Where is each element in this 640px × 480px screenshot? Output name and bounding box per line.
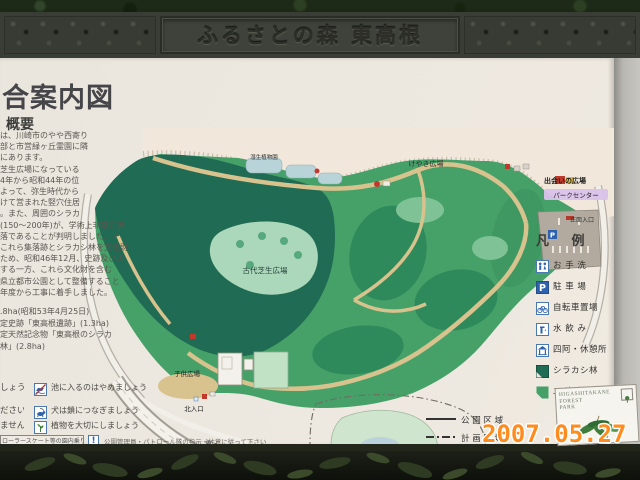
sign-board: P P xyxy=(0,58,614,446)
fence-leaf-relief xyxy=(0,444,640,480)
legend-label: シラカシ林 xyxy=(553,364,598,376)
rule-row: ません 植物を大切にしましょう xyxy=(0,418,139,432)
map-tree-dot xyxy=(294,251,302,259)
fact-line: 林」(2.8ha) xyxy=(0,341,170,353)
designation-facts: .8ha(昭和53年4月25日) 定史跡「東高根遺跡」(1.3ha) 定天然記念… xyxy=(0,306,170,352)
restroom-icon xyxy=(536,258,549,271)
legend-label: 駐 車 場 xyxy=(553,280,586,292)
map-wetland-pool xyxy=(318,173,342,184)
park-name-title: ふるさとの森 東高根 xyxy=(197,20,423,50)
map-toilet-icon xyxy=(505,164,510,169)
paragraph-line: は、川崎市のやや西寄り xyxy=(0,130,160,141)
legend-item-shirakashi: シラカシ林 xyxy=(536,362,614,377)
banner-ornament-right xyxy=(464,16,636,54)
paragraph-line: にあります。 xyxy=(0,152,160,163)
legend-item-water: 水 飲 み xyxy=(536,320,614,335)
rule-text: 池に入るのはやめましょう xyxy=(51,382,147,393)
rule-partial-text: しょう xyxy=(0,381,24,393)
paragraph-line: (150〜200年)が、学術上非常に価 xyxy=(0,220,160,231)
rule-text: 犬は鎖につなぎましょう xyxy=(51,405,139,416)
legend-heading: 凡 例 xyxy=(536,230,614,249)
no-entering-pond-icon xyxy=(34,381,47,394)
map-facility-icon xyxy=(194,397,198,401)
legend-item-bicycle: 自転車置場 xyxy=(536,299,614,314)
svg-text:P: P xyxy=(539,283,546,294)
legend-label: お 手 洗 xyxy=(553,259,586,271)
paragraph-line: 落であることが判明しました。そ xyxy=(0,231,160,242)
rule-partial-text: ません xyxy=(0,419,24,431)
map-label-main-entrance: 正面入口 xyxy=(570,217,594,224)
map-wetland-pool xyxy=(286,165,316,178)
paragraph-line: これら集落跡とシラカシ林を文化財 xyxy=(0,242,160,253)
map-label-ancient-lawn: 古代芝生広場 xyxy=(243,265,288,275)
banner-title-panel: ふるさとの森 東高根 xyxy=(160,16,460,54)
banner-ornament-left xyxy=(4,16,156,54)
paragraph-line: けて営まれた竪穴住居 xyxy=(0,197,160,208)
dog-on-leash-icon xyxy=(34,404,47,417)
rule-partial-text: ださい xyxy=(0,404,24,416)
map-tree-dot xyxy=(236,240,244,248)
parking-icon: P xyxy=(536,279,549,292)
paragraph-line: 県立都市公園として整備すること xyxy=(0,276,160,287)
fact-line: 定史跡「東高根遺跡」(1.3ha) xyxy=(0,318,170,330)
map-toilet-icon xyxy=(374,181,380,187)
map-tree-dot xyxy=(280,237,288,245)
map-clearing xyxy=(472,236,508,260)
legend-item-gazebo: 四阿・休憩所 xyxy=(536,341,614,356)
photograph-of-park-sign: ふるさとの森 東高根 xyxy=(0,0,640,480)
map-label-north-entrance: 北入口 xyxy=(184,405,204,413)
fact-line: .8ha(昭和53年4月25日) xyxy=(0,306,170,318)
map-toilet-icon xyxy=(190,334,196,339)
legend-item-restroom: お 手 洗 xyxy=(536,257,614,272)
paragraph-line: ため、昭和46年12月、史跡及び天 xyxy=(0,253,160,264)
legend-label: 四阿・休憩所 xyxy=(553,343,607,355)
map-facility-icon xyxy=(523,164,529,169)
paragraph-line: 部と市営緑ヶ丘霊園に隣 xyxy=(0,141,160,152)
map-facility-icon xyxy=(383,181,390,186)
legend-label: 自転車置場 xyxy=(553,301,598,313)
map-label-kids-plaza: 子供広場 xyxy=(174,369,201,378)
map-label-meeting-plaza: 出会いの広場 xyxy=(544,176,586,185)
paragraph-line: 4年から昭和44年の位 xyxy=(0,175,160,186)
sign-title-partial: 合案内図 xyxy=(2,76,114,115)
fact-line: 定天然記念物「東高根のシラカ xyxy=(0,329,170,341)
map-facility-icon xyxy=(514,166,520,171)
paragraph-line: 年度から工事に着手しました。 xyxy=(0,287,160,298)
map-tree-dot xyxy=(258,232,266,240)
map-field xyxy=(254,352,288,388)
shirakashi-forest-swatch xyxy=(536,363,549,376)
rule-text: 植物を大切にしましょう xyxy=(51,420,139,431)
map-toilet-icon xyxy=(315,169,320,174)
rule-row: ださい 犬は鎖につなぎましょう xyxy=(0,403,139,417)
overview-paragraph: は、川崎市のやや西寄り 部と市営緑ヶ丘霊園に隣 にあります。 芝生広場になってい… xyxy=(0,130,160,298)
iron-fence xyxy=(0,444,640,480)
map-clearing xyxy=(396,197,444,223)
legend-label: 水 飲 み xyxy=(553,322,586,334)
camera-datestamp: 2007.05.27 xyxy=(482,420,627,448)
tree-stamp-icon xyxy=(621,388,634,401)
paragraph-line: する一方、これら文化財を含む xyxy=(0,264,160,275)
map-label-park-center: パークセンター xyxy=(553,191,599,200)
drinking-fountain-icon xyxy=(536,321,549,334)
paragraph-line: 芝生広場になっている xyxy=(0,164,160,175)
bicycle-icon xyxy=(536,300,549,313)
rule-row: しょう 池に入るのはやめましょう xyxy=(0,380,147,394)
gazebo-icon xyxy=(536,342,549,355)
protect-plants-icon xyxy=(34,419,47,432)
paragraph-line: よって、弥生時代から xyxy=(0,186,160,197)
secondary-forest-swatch xyxy=(536,384,549,397)
map-building-outline xyxy=(244,359,253,370)
legend-item-parking: P 駐 車 場 xyxy=(536,278,614,293)
legend-panel: 凡 例 お 手 洗 P 駐 車 場 自転車置場 水 飲 み 四阿・休憩所 xyxy=(536,230,614,404)
map-label-keyaki-plaza: けやき広場 xyxy=(409,159,444,168)
map-label-wetland-garden: 湿生植物園 xyxy=(250,153,278,161)
paragraph-line: 。また、周囲のシラカ xyxy=(0,208,160,219)
sign-banner: ふるさとの森 東高根 xyxy=(0,12,640,58)
map-toilet-icon xyxy=(202,394,207,399)
map-facility-icon xyxy=(210,392,215,396)
